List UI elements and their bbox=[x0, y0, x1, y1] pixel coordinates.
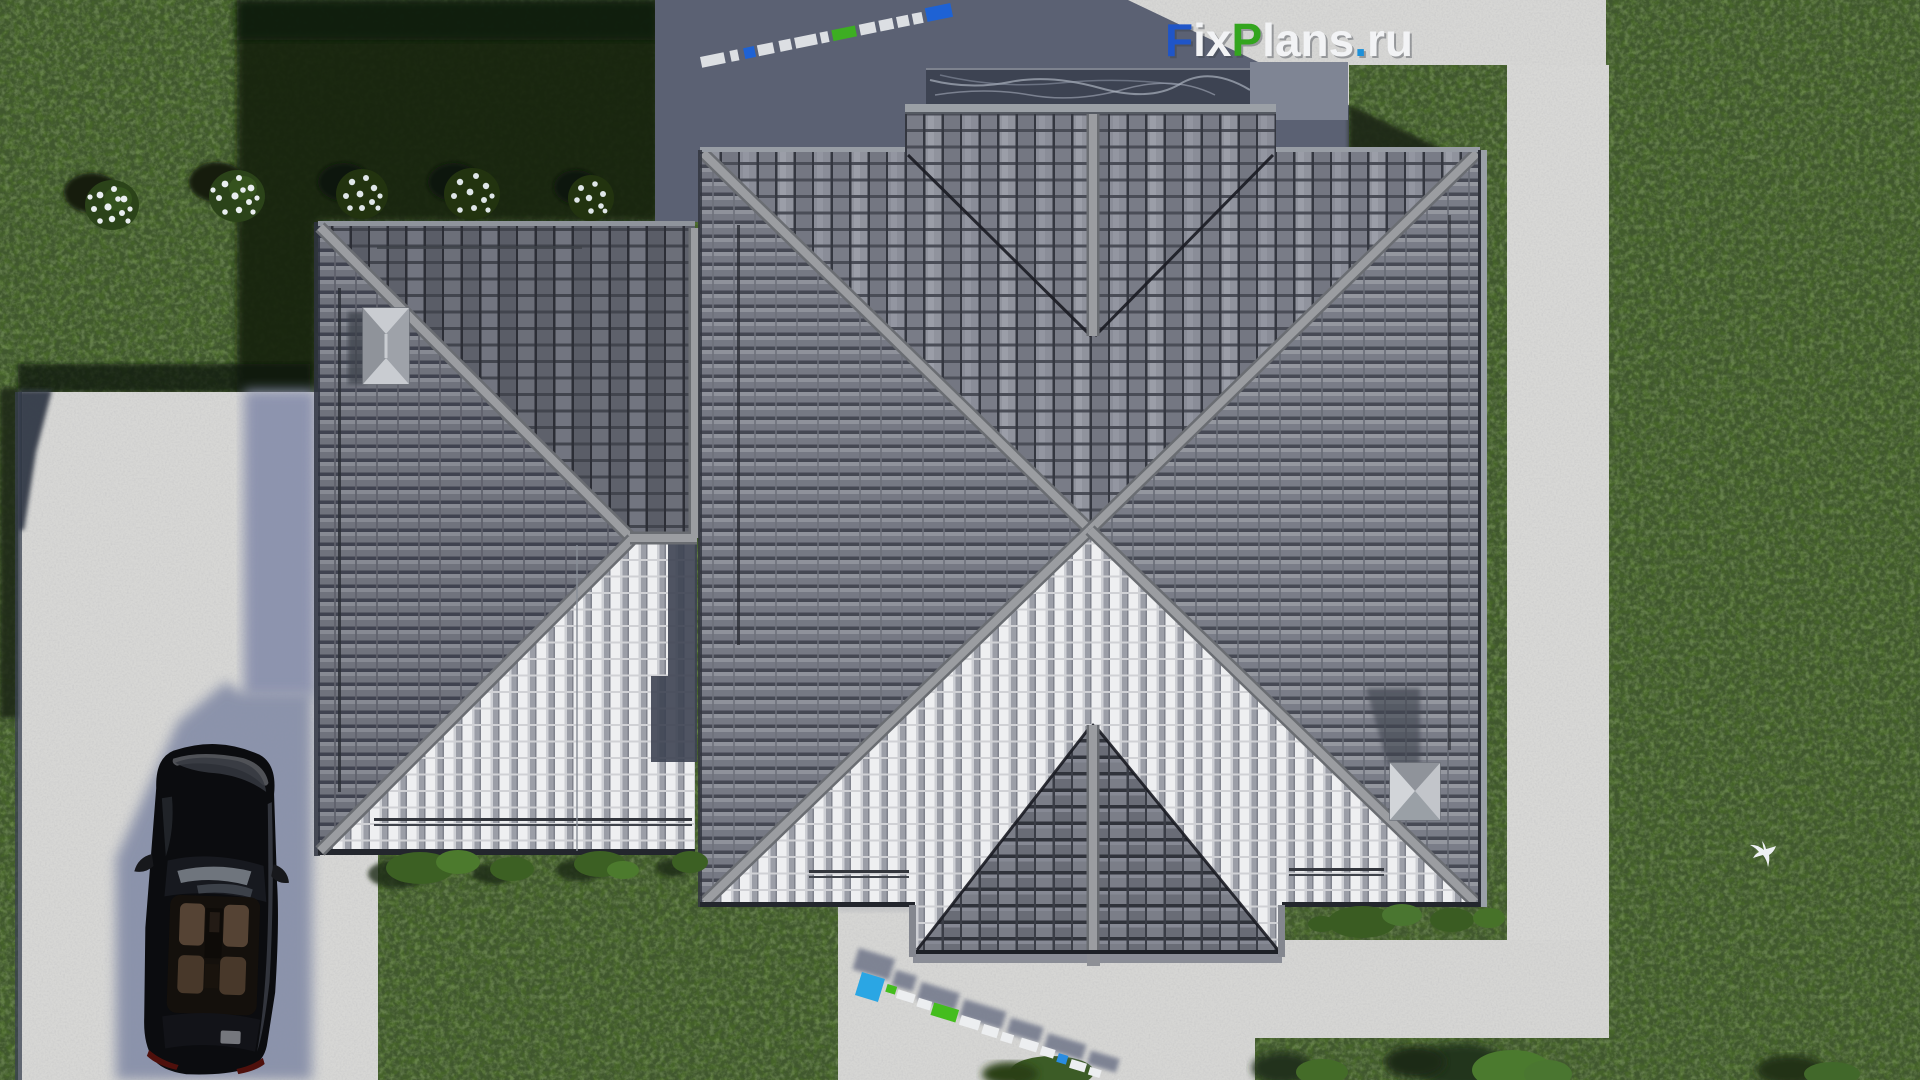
svg-text:FixPlans.ru: FixPlans.ru bbox=[1165, 14, 1413, 66]
